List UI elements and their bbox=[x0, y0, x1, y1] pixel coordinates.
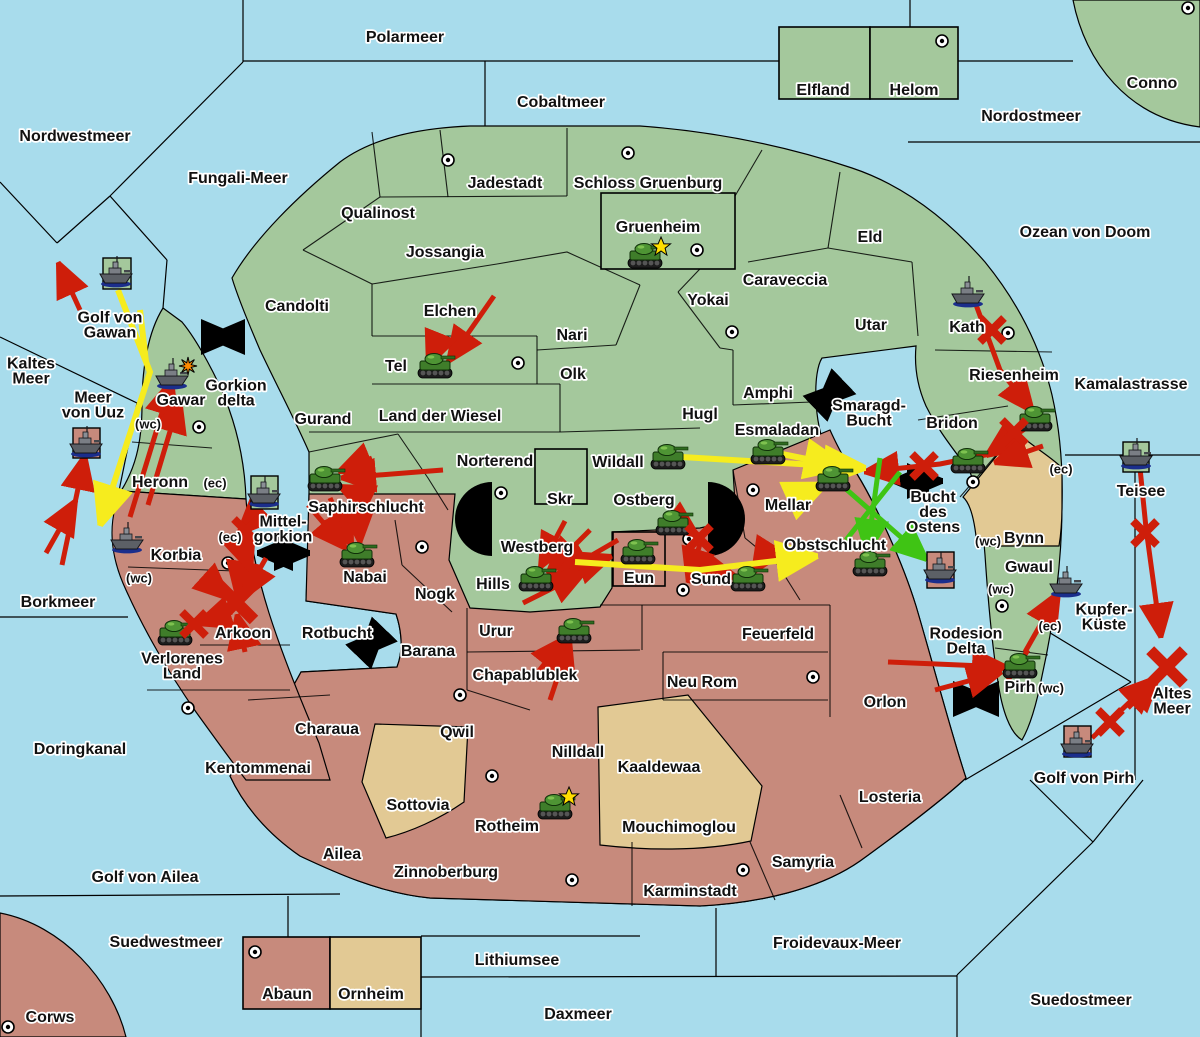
sea-label[interactable]: KaltesMeer bbox=[7, 356, 55, 388]
tank-barrel bbox=[363, 545, 377, 548]
territory-label[interactable]: Kentommenai bbox=[205, 760, 311, 777]
tank-turret bbox=[545, 795, 563, 806]
supply-center-dot[interactable] bbox=[967, 476, 979, 488]
supply-center-dot[interactable] bbox=[677, 584, 689, 596]
tank-turret bbox=[663, 511, 681, 522]
supply-center-dot[interactable] bbox=[182, 702, 194, 714]
tank-wheel bbox=[862, 569, 867, 574]
tank-wheel bbox=[666, 462, 671, 467]
ship-hull bbox=[924, 570, 956, 579]
ship-bridge bbox=[261, 482, 266, 488]
supply-center-dot[interactable] bbox=[495, 487, 507, 499]
tank-wheel bbox=[880, 569, 885, 574]
sea-label[interactable]: Teisee bbox=[1117, 483, 1166, 500]
sea-label[interactable]: Mittel-gorkion bbox=[254, 514, 313, 546]
supply-center-core bbox=[490, 774, 494, 778]
ship-bridge bbox=[965, 282, 970, 288]
supply-center-core bbox=[730, 330, 734, 334]
ship-hull bbox=[111, 540, 143, 549]
map-canvas[interactable]: PolarmeerCobaltmeerNordostmeerOzean von … bbox=[0, 0, 1200, 1037]
sea-label[interactable]: Nordwestmeer bbox=[19, 128, 130, 145]
territory-label[interactable]: Jossangia bbox=[406, 244, 484, 261]
tank-barrel bbox=[754, 569, 768, 572]
coast-indicator-label: (wc) bbox=[135, 416, 161, 431]
territory-label[interactable]: Ailea bbox=[323, 846, 361, 863]
supply-center-dot[interactable] bbox=[1182, 2, 1194, 14]
ship-gun bbox=[94, 440, 101, 442]
territory-label[interactable]: Urur bbox=[479, 623, 513, 640]
territory-label[interactable]: Mouchimoglou bbox=[622, 819, 736, 836]
territory-label[interactable]: Kaaldewaa bbox=[618, 759, 701, 776]
tank-wheel bbox=[578, 636, 583, 641]
supply-center-core bbox=[811, 675, 815, 679]
tank-wheel bbox=[173, 638, 178, 643]
tank-wheel bbox=[642, 557, 647, 562]
territory-label[interactable]: Gurand bbox=[295, 411, 352, 428]
ship-hull bbox=[70, 444, 102, 453]
coast-indicator-label: (wc) bbox=[988, 581, 1014, 596]
tank-wheel bbox=[349, 560, 354, 565]
sea-label[interactable]: Borkmeer bbox=[21, 594, 96, 611]
supply-center-core bbox=[499, 491, 503, 495]
territory-label[interactable]: Orlon bbox=[864, 694, 907, 711]
coast-indicator-label: (ec) bbox=[218, 529, 241, 544]
supply-center-dot[interactable] bbox=[249, 946, 261, 958]
tank-highlight bbox=[661, 446, 668, 449]
territory-label[interactable]: Nabai bbox=[343, 569, 387, 586]
supply-center-core bbox=[186, 706, 190, 710]
territory-label[interactable]: Land der Wiesel bbox=[379, 408, 502, 425]
tank-barrel bbox=[876, 554, 890, 557]
tank-wheel bbox=[630, 557, 635, 562]
territory-label[interactable]: Wildall bbox=[592, 454, 643, 471]
tank-highlight bbox=[567, 620, 574, 623]
tank-wheel bbox=[1045, 424, 1050, 429]
tank-wheel bbox=[522, 584, 527, 589]
tank-wheel bbox=[636, 557, 641, 562]
tank-wheel bbox=[778, 457, 783, 462]
tank-highlight bbox=[548, 796, 555, 799]
ship-gun bbox=[976, 290, 983, 292]
tank-wheel bbox=[654, 462, 659, 467]
ship-gun bbox=[948, 566, 955, 568]
territory-label[interactable]: Feuerfeld bbox=[742, 626, 814, 643]
territory-label[interactable]: Mellar bbox=[765, 497, 811, 514]
supply-center-dot[interactable] bbox=[622, 147, 634, 159]
tank-wheel bbox=[439, 371, 444, 376]
tank-highlight bbox=[638, 245, 645, 248]
tank-wheel bbox=[978, 466, 983, 471]
tank-wheel bbox=[746, 584, 751, 589]
territory-label[interactable]: Utar bbox=[855, 317, 887, 334]
sea-label[interactable]: AltesMeer bbox=[1152, 686, 1191, 718]
territory-label[interactable]: Norterend bbox=[457, 453, 533, 470]
tank-wheel bbox=[819, 484, 824, 489]
tank-turret bbox=[738, 567, 756, 578]
ship-superstructure bbox=[120, 534, 132, 540]
ship-hull bbox=[1050, 584, 1082, 593]
tank-barrel bbox=[679, 513, 693, 516]
territory-label[interactable]: Nogk bbox=[415, 586, 455, 603]
supply-center-dot[interactable] bbox=[807, 671, 819, 683]
ship-hull bbox=[248, 494, 280, 503]
tank-turret bbox=[564, 619, 582, 630]
tank-highlight bbox=[761, 441, 768, 444]
supply-center-core bbox=[197, 425, 201, 429]
tank-wheel bbox=[966, 466, 971, 471]
ship-gun bbox=[135, 536, 142, 538]
ship-bridge bbox=[124, 528, 129, 534]
tank-turret bbox=[347, 543, 365, 554]
supply-center-core bbox=[226, 561, 230, 565]
sea-label[interactable]: Polarmeer bbox=[366, 29, 444, 46]
tank-turret bbox=[658, 445, 676, 456]
tank-wheel bbox=[1018, 671, 1023, 676]
territory-label[interactable]: Arkoon bbox=[215, 625, 271, 642]
tank-highlight bbox=[1013, 655, 1020, 658]
ship-gun bbox=[180, 372, 187, 374]
supply-center-core bbox=[6, 1025, 10, 1029]
territory-label[interactable]: Chapablublek bbox=[473, 667, 578, 684]
tank-turret bbox=[635, 244, 653, 255]
territory-label[interactable]: Elfland bbox=[796, 82, 849, 99]
territory-label[interactable]: Karminstadt bbox=[643, 883, 737, 900]
tank-wheel bbox=[335, 484, 340, 489]
territory-label[interactable]: Conno bbox=[1127, 75, 1178, 92]
territory-label[interactable]: Eun bbox=[624, 570, 654, 587]
tank-wheel bbox=[752, 584, 757, 589]
tank-wheel bbox=[1012, 671, 1017, 676]
tank-wheel bbox=[560, 636, 565, 641]
ship-superstructure bbox=[109, 268, 121, 274]
tank-wheel bbox=[1039, 424, 1044, 429]
territory-label[interactable]: Zinnoberburg bbox=[394, 864, 498, 881]
tank-wheel bbox=[972, 466, 977, 471]
tank-wheel bbox=[367, 560, 372, 565]
supply-center-dot[interactable] bbox=[442, 154, 454, 166]
supply-center-dot[interactable] bbox=[936, 35, 948, 47]
tank-wheel bbox=[766, 457, 771, 462]
tank-barrel bbox=[1026, 656, 1040, 659]
tank-wheel bbox=[565, 812, 570, 817]
territory-label[interactable]: Riesenheim bbox=[969, 367, 1059, 384]
tank-highlight bbox=[318, 468, 325, 471]
supply-center-core bbox=[741, 868, 745, 872]
tank-highlight bbox=[741, 568, 748, 571]
tank-turret bbox=[628, 540, 646, 551]
territory-label[interactable]: Amphi bbox=[743, 385, 793, 402]
supply-center-core bbox=[420, 545, 424, 549]
territory-label[interactable]: Gwaul bbox=[1005, 559, 1053, 576]
ship-hull bbox=[1061, 744, 1093, 753]
tank-wheel bbox=[772, 457, 777, 462]
game-map: PolarmeerCobaltmeerNordostmeerOzean von … bbox=[0, 0, 1200, 1037]
tank-barrel bbox=[542, 569, 556, 572]
territory-label[interactable]: Ostberg bbox=[613, 492, 674, 509]
ship-gun bbox=[1144, 452, 1151, 454]
tank-wheel bbox=[361, 560, 366, 565]
territory-label[interactable]: Heronn bbox=[132, 474, 188, 491]
supply-center-core bbox=[458, 693, 462, 697]
territory-label[interactable]: Sund bbox=[691, 571, 731, 588]
tank-wheel bbox=[433, 371, 438, 376]
supply-center-dot[interactable] bbox=[691, 244, 703, 256]
supply-center-core bbox=[1006, 331, 1010, 335]
territory-label[interactable]: Eld bbox=[858, 229, 883, 246]
tank-wheel bbox=[758, 584, 763, 589]
territory-label[interactable]: Saphirschlucht bbox=[308, 499, 424, 516]
sea-label[interactable]: Lithiumsee bbox=[475, 952, 560, 969]
tank-highlight bbox=[826, 468, 833, 471]
tank-wheel bbox=[649, 261, 654, 266]
tank-highlight bbox=[428, 355, 435, 358]
territory-label[interactable]: Kath bbox=[949, 319, 985, 336]
territory-label[interactable]: Nilldall bbox=[552, 744, 604, 761]
tank-turret bbox=[1025, 407, 1043, 418]
territory-label[interactable]: Obstschlucht bbox=[784, 537, 887, 554]
supply-center-dot[interactable] bbox=[222, 557, 234, 569]
tank-wheel bbox=[665, 528, 670, 533]
ship-superstructure bbox=[1129, 450, 1141, 456]
tank-turret bbox=[526, 567, 544, 578]
territory-label[interactable]: Gruenheim bbox=[616, 219, 700, 236]
ship-bridge bbox=[1074, 732, 1079, 738]
territory-label[interactable]: Korbia bbox=[151, 547, 202, 564]
territory-label[interactable]: Gawar bbox=[157, 392, 206, 409]
supply-center-dot[interactable] bbox=[454, 689, 466, 701]
territory-label[interactable]: Bridon bbox=[926, 415, 978, 432]
coast-indicator-label: (wc) bbox=[975, 533, 1001, 548]
tank-wheel bbox=[1024, 671, 1029, 676]
territory-label[interactable]: Jadestadt bbox=[468, 175, 543, 192]
territory-label[interactable]: Yokai bbox=[687, 292, 729, 309]
supply-center-dot[interactable] bbox=[996, 600, 1008, 612]
territory-label[interactable]: Skr bbox=[547, 491, 573, 508]
tank-wheel bbox=[323, 484, 328, 489]
sea-label[interactable]: Suedwestmeer bbox=[110, 934, 223, 951]
sea-label[interactable]: Rotbucht bbox=[302, 625, 373, 642]
supply-center-core bbox=[1000, 604, 1004, 608]
territory-label[interactable]: Caraveccia bbox=[743, 272, 828, 289]
tank-turret bbox=[315, 467, 333, 478]
tank-wheel bbox=[547, 812, 552, 817]
tank-wheel bbox=[584, 636, 589, 641]
tank-turret bbox=[823, 467, 841, 478]
tank-wheel bbox=[631, 261, 636, 266]
supply-center-dot[interactable] bbox=[416, 541, 428, 553]
tank-wheel bbox=[643, 261, 648, 266]
coast-indicator-label: (wc) bbox=[1038, 680, 1064, 695]
coast-indicator-label: (ec) bbox=[1038, 618, 1061, 633]
territory-label[interactable]: Olk bbox=[560, 366, 586, 383]
ship-bridge bbox=[1133, 444, 1138, 450]
ship-hull bbox=[952, 294, 984, 303]
tank-barrel bbox=[839, 469, 853, 472]
ship-gun bbox=[1074, 580, 1081, 582]
territory-label[interactable]: Rotheim bbox=[475, 818, 539, 835]
territory-label[interactable]: Nari bbox=[556, 327, 587, 344]
tank-barrel bbox=[974, 451, 988, 454]
tank-wheel bbox=[624, 557, 629, 562]
supply-center-core bbox=[687, 537, 691, 541]
territory-label[interactable]: Sottovia bbox=[386, 797, 449, 814]
sea-label[interactable]: Kupfer-Küste bbox=[1076, 602, 1133, 634]
tank-wheel bbox=[534, 584, 539, 589]
explosion-icon bbox=[179, 357, 197, 375]
tank-wheel bbox=[672, 462, 677, 467]
territory-label[interactable]: Losteria bbox=[859, 789, 921, 806]
tank-wheel bbox=[837, 484, 842, 489]
territory-label[interactable]: Bynn bbox=[1004, 530, 1044, 547]
tank-wheel bbox=[825, 484, 830, 489]
tank-highlight bbox=[529, 568, 536, 571]
supply-center-dot[interactable] bbox=[193, 421, 205, 433]
sea-label[interactable]: Daxmeer bbox=[544, 1006, 612, 1023]
ship-bridge bbox=[937, 558, 942, 564]
ship-superstructure bbox=[933, 564, 945, 570]
tank-wheel bbox=[179, 638, 184, 643]
coast-indicator-label: (ec) bbox=[203, 475, 226, 490]
sea-label[interactable]: Kamalastrasse bbox=[1075, 376, 1188, 393]
tank-wheel bbox=[311, 484, 316, 489]
supply-center-core bbox=[516, 361, 520, 365]
tank-barrel bbox=[1041, 409, 1055, 412]
sea-label[interactable]: Suedostmeer bbox=[1030, 992, 1131, 1009]
territory-label[interactable]: Candolti bbox=[265, 298, 329, 315]
ship-bridge bbox=[169, 364, 174, 370]
supply-center-core bbox=[1186, 6, 1190, 10]
tank-wheel bbox=[161, 638, 166, 643]
supply-center-dot[interactable] bbox=[512, 357, 524, 369]
tank-turret bbox=[758, 440, 776, 451]
supply-center-dot[interactable] bbox=[747, 484, 759, 496]
tank-wheel bbox=[637, 261, 642, 266]
supply-center-dot[interactable] bbox=[726, 326, 738, 338]
tank-wheel bbox=[541, 812, 546, 817]
sea-label[interactable]: Cobaltmeer bbox=[517, 94, 605, 111]
supply-center-core bbox=[253, 950, 257, 954]
tank-wheel bbox=[427, 371, 432, 376]
tank-wheel bbox=[540, 584, 545, 589]
tank-highlight bbox=[1028, 408, 1035, 411]
territory-label[interactable]: Barana bbox=[401, 643, 455, 660]
sea-label[interactable]: Ozean von Doom bbox=[1020, 224, 1151, 241]
sea-label[interactable]: Fungali-Meer bbox=[188, 170, 288, 187]
tank-turret bbox=[165, 621, 183, 632]
territory-label[interactable]: Tel bbox=[385, 358, 407, 375]
ship-superstructure bbox=[257, 488, 269, 494]
sea-label[interactable]: Golf von Ailea bbox=[92, 869, 199, 886]
supply-center-dot[interactable] bbox=[2, 1021, 14, 1033]
territory-label[interactable]: Qwil bbox=[440, 724, 474, 741]
territory-label[interactable]: Elchen bbox=[424, 303, 476, 320]
ship-gun bbox=[124, 270, 131, 272]
tank-barrel bbox=[580, 621, 594, 624]
territory-label[interactable]: Qualinost bbox=[341, 205, 415, 222]
tank-barrel bbox=[774, 442, 788, 445]
ship-bridge bbox=[1063, 572, 1068, 578]
ship-gun bbox=[1085, 740, 1092, 742]
tank-barrel bbox=[644, 542, 658, 545]
supply-center-core bbox=[695, 248, 699, 252]
tank-wheel bbox=[572, 636, 577, 641]
supply-center-core bbox=[681, 588, 685, 592]
tank-wheel bbox=[954, 466, 959, 471]
sea-label[interactable]: Froidevaux-Meer bbox=[773, 935, 901, 952]
tank-wheel bbox=[671, 528, 676, 533]
territory-label[interactable]: Charaua bbox=[295, 721, 359, 738]
territory-label[interactable]: Abaun bbox=[262, 986, 312, 1003]
territory-label[interactable]: Helom bbox=[890, 82, 939, 99]
territory-label[interactable]: Westberg bbox=[501, 539, 574, 556]
tank-wheel bbox=[874, 569, 879, 574]
tank-wheel bbox=[843, 484, 848, 489]
tank-wheel bbox=[167, 638, 172, 643]
tank-wheel bbox=[659, 528, 664, 533]
supply-center-core bbox=[940, 39, 944, 43]
ship-gun bbox=[272, 490, 279, 492]
tank-highlight bbox=[168, 622, 175, 625]
tank-turret bbox=[425, 354, 443, 365]
tank-highlight bbox=[631, 541, 638, 544]
tank-wheel bbox=[648, 557, 653, 562]
territory-label[interactable]: Neu Rom bbox=[667, 674, 737, 691]
territory-label[interactable]: Ornheim bbox=[338, 986, 404, 1003]
ship-bridge bbox=[83, 432, 88, 438]
tank-barrel bbox=[441, 356, 455, 359]
supply-center-dot[interactable] bbox=[737, 864, 749, 876]
sea-label[interactable]: Golf vonGawan bbox=[78, 310, 143, 342]
territory-label[interactable]: Corws bbox=[26, 1009, 75, 1026]
tank-wheel bbox=[317, 484, 322, 489]
ship-hull bbox=[156, 376, 188, 385]
supply-center-core bbox=[570, 878, 574, 882]
tank-wheel bbox=[1030, 671, 1035, 676]
territory-label[interactable]: Hugl bbox=[682, 406, 718, 423]
supply-center-dot[interactable] bbox=[566, 874, 578, 886]
coast-indicator-label: (ec) bbox=[1049, 461, 1072, 476]
supply-center-dot[interactable] bbox=[486, 770, 498, 782]
territory-label[interactable]: Pirh bbox=[1004, 679, 1035, 696]
sea-label[interactable]: Doringkanal bbox=[34, 741, 126, 758]
tank-wheel bbox=[660, 462, 665, 467]
tank-wheel bbox=[343, 560, 348, 565]
ship-superstructure bbox=[1070, 738, 1082, 744]
territory-label[interactable]: Esmaladan bbox=[735, 422, 819, 439]
tank-turret bbox=[958, 449, 976, 460]
sea-label[interactable]: Nordostmeer bbox=[981, 108, 1081, 125]
tank-barrel bbox=[331, 469, 345, 472]
territory-label[interactable]: Schloss Gruenburg bbox=[574, 175, 722, 192]
territory-label[interactable]: Hills bbox=[476, 576, 510, 593]
supply-center-core bbox=[751, 488, 755, 492]
tank-wheel bbox=[655, 261, 660, 266]
supply-center-core bbox=[446, 158, 450, 162]
tank-wheel bbox=[1006, 671, 1011, 676]
ship-superstructure bbox=[1059, 578, 1071, 584]
tank-highlight bbox=[961, 450, 968, 453]
tank-wheel bbox=[740, 584, 745, 589]
tank-wheel bbox=[760, 457, 765, 462]
sea-label[interactable]: Golf von Pirh bbox=[1034, 770, 1134, 787]
tank-wheel bbox=[856, 569, 861, 574]
ship-superstructure bbox=[961, 288, 973, 294]
tank-wheel bbox=[566, 636, 571, 641]
ship-superstructure bbox=[165, 370, 177, 376]
territory-label[interactable]: Samyria bbox=[772, 854, 834, 871]
tank-wheel bbox=[445, 371, 450, 376]
tank-highlight bbox=[666, 512, 673, 515]
